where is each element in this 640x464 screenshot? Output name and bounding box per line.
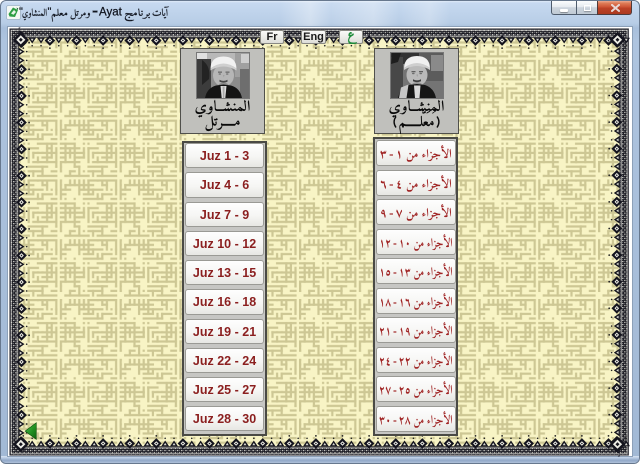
svg-text:Ayat: Ayat: [99, 7, 123, 19]
svg-text:": ": [48, 6, 52, 18]
svg-text:": ": [19, 6, 23, 18]
